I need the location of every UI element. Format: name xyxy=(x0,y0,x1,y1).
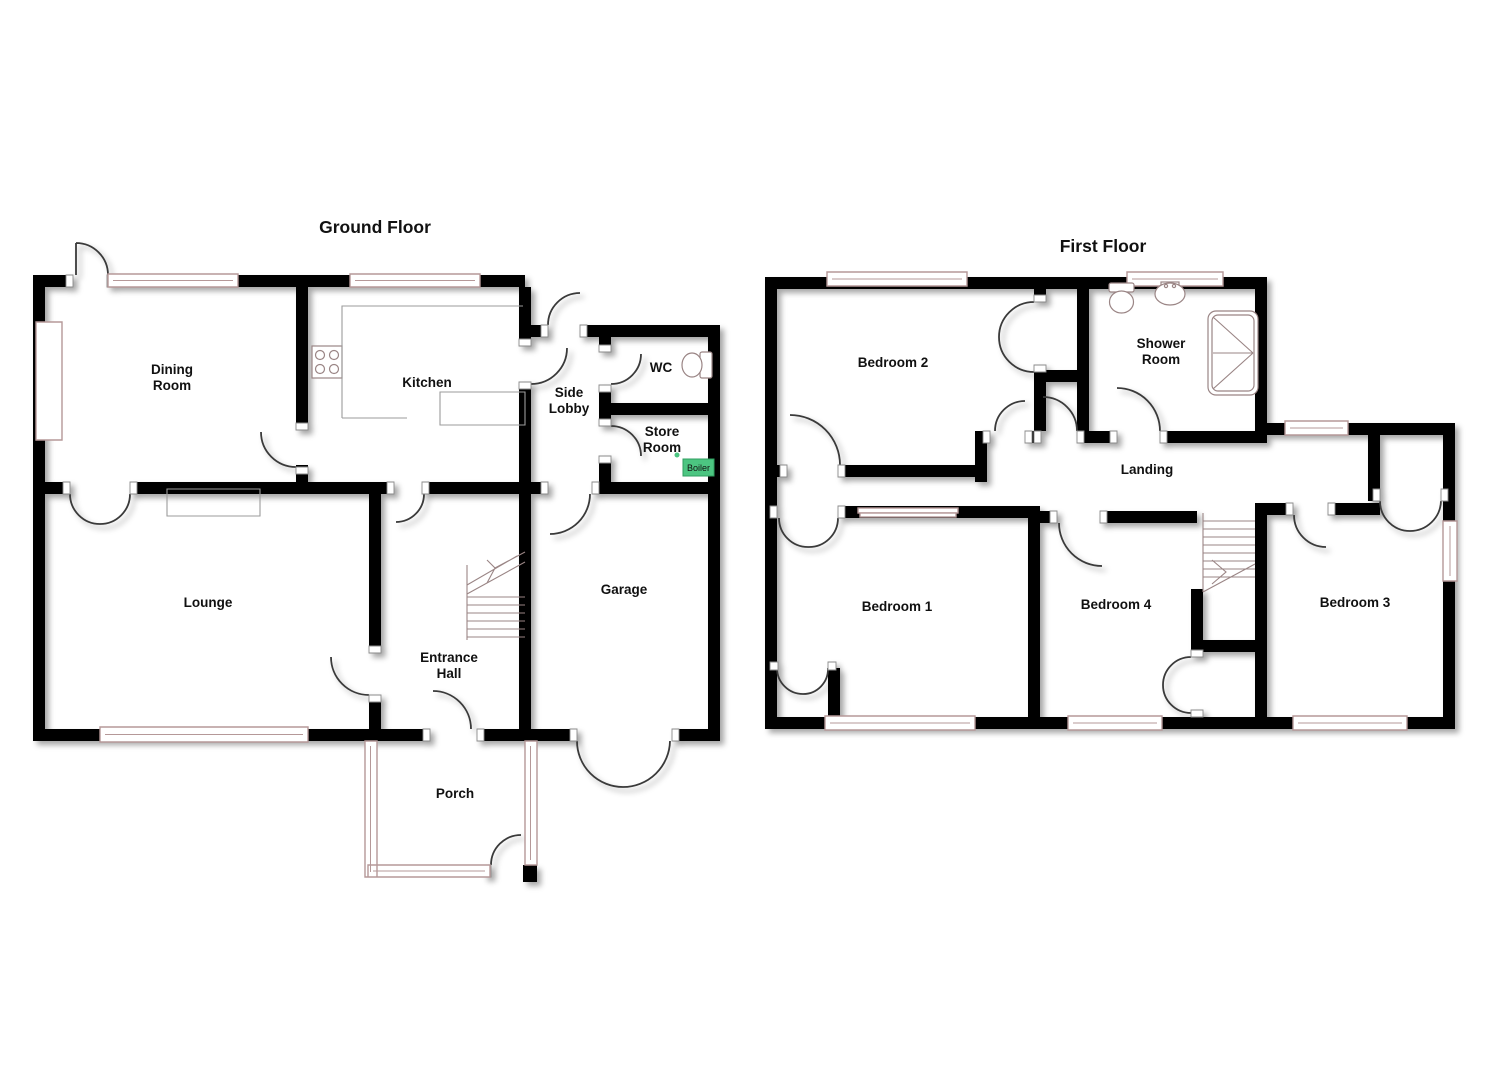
side-lobby-label-2: Lobby xyxy=(549,401,590,416)
ground-floor-plan: Ground Floor Boi xyxy=(33,217,720,882)
bedroom1-wardrobe-front xyxy=(858,508,958,517)
first-floor-plan: First Floor xyxy=(765,236,1457,730)
shower-room-label-1: Shower xyxy=(1137,336,1187,351)
shower-room-toilet-icon xyxy=(1109,283,1134,313)
wc-label: WC xyxy=(650,360,673,375)
landing-label: Landing xyxy=(1121,462,1174,477)
wc-toilet-icon xyxy=(682,352,712,378)
side-lobby-label-1: Side xyxy=(555,385,584,400)
entrance-hall-label-2: Hall xyxy=(437,666,462,681)
porch-label: Porch xyxy=(436,786,474,801)
bedroom-3-label: Bedroom 3 xyxy=(1320,595,1391,610)
floorplan-drawing: Ground Floor Boi xyxy=(0,0,1485,1080)
kitchen-label: Kitchen xyxy=(402,375,452,390)
dining-room-label-1: Dining xyxy=(151,362,193,377)
store-room-label-2: Room xyxy=(643,440,681,455)
kitchen-counter-line xyxy=(342,306,525,425)
dining-room-label-2: Room xyxy=(153,378,191,393)
kitchen-stove-icon xyxy=(312,346,342,378)
entrance-hall-label-1: Entrance xyxy=(420,650,478,665)
bedroom-1-label: Bedroom 1 xyxy=(862,599,933,614)
ground-floor-title: Ground Floor xyxy=(319,217,431,237)
first-floor-title: First Floor xyxy=(1060,236,1147,256)
store-room-label-1: Store xyxy=(645,424,680,439)
first-floor-walls xyxy=(765,277,1455,729)
shower-room-label-2: Room xyxy=(1142,352,1180,367)
staircase-first xyxy=(1203,513,1255,592)
garage-label: Garage xyxy=(601,582,648,597)
floorplan-page: Ground Floor Boi xyxy=(0,0,1485,1080)
lounge-label: Lounge xyxy=(184,595,233,610)
staircase-ground xyxy=(467,552,525,640)
bedroom-2-label: Bedroom 2 xyxy=(858,355,929,370)
shower-room-sink-icon xyxy=(1155,282,1185,305)
boiler-label: Boiler xyxy=(687,463,710,473)
bedroom-4-label: Bedroom 4 xyxy=(1081,597,1152,612)
shower-cubicle-icon xyxy=(1208,311,1258,395)
first-floor-walls-group xyxy=(765,277,1455,729)
